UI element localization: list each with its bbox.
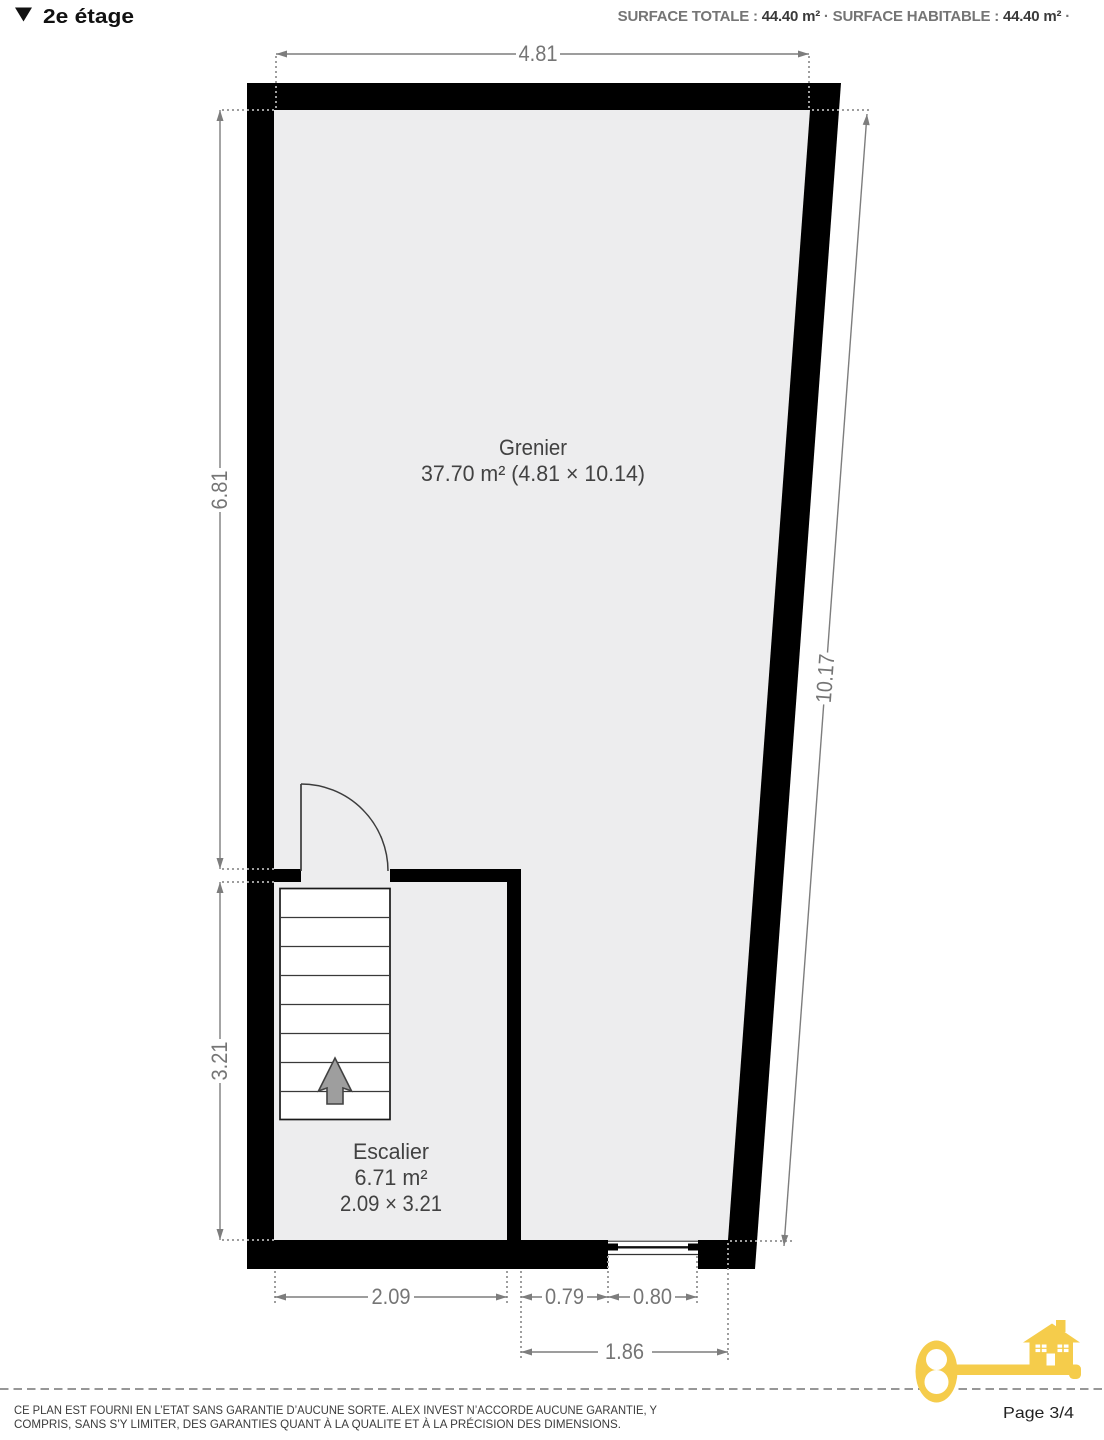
svg-text:SURFACE TOTALE : 44.40 m² · SU: SURFACE TOTALE : 44.40 m² · SURFACE HABI… [618,8,1070,25]
svg-text:CE PLAN EST FOURNI EN L’ETAT S: CE PLAN EST FOURNI EN L’ETAT SANS GARANT… [14,1405,657,1417]
svg-text:6.81: 6.81 [207,471,232,510]
svg-text:Grenier: Grenier [499,435,567,460]
svg-text:0.79: 0.79 [545,1284,584,1309]
svg-text:2.09: 2.09 [372,1284,411,1309]
svg-text:COMPRIS, SANS S’Y LIMITER, DES: COMPRIS, SANS S’Y LIMITER, DES GARANTIES… [14,1418,621,1431]
svg-text:6.71 m²: 6.71 m² [355,1165,428,1190]
svg-text:2e étage: 2e étage [43,6,134,28]
svg-text:0.80: 0.80 [633,1284,672,1309]
svg-text:Escalier: Escalier [353,1139,429,1164]
svg-text:10.17: 10.17 [811,653,840,704]
svg-text:3.21: 3.21 [207,1042,232,1081]
svg-text:Page 3/4: Page 3/4 [1003,1405,1074,1422]
svg-text:1.86: 1.86 [605,1339,644,1364]
svg-text:4.81: 4.81 [519,41,558,66]
svg-text:37.70 m² (4.81 × 10.14): 37.70 m² (4.81 × 10.14) [421,461,645,486]
svg-text:2.09 × 3.21: 2.09 × 3.21 [340,1191,442,1216]
